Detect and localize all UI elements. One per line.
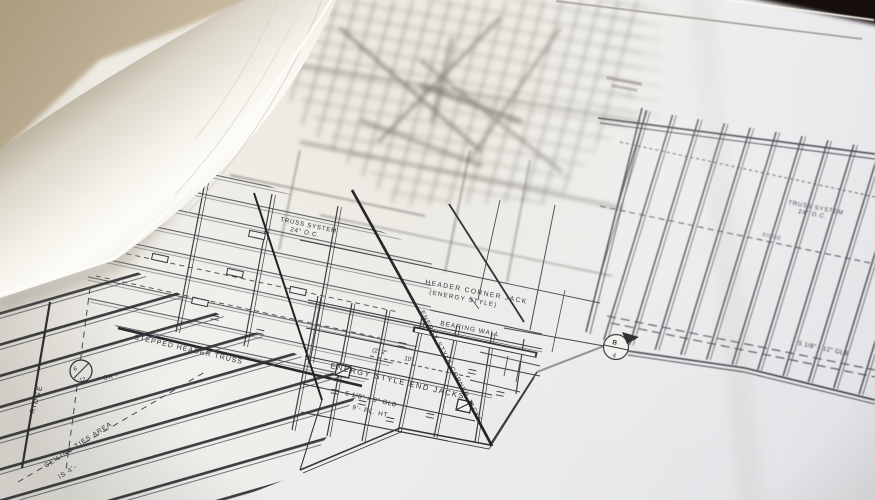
framing-plan-svg: TRUSS SYSTEM 24" O.C. RIDGE 5 1/8" - 12"… [0,0,875,500]
blueprint-photo: TRUSS SYSTEM 24" O.C. RIDGE 5 1/8" - 12"… [0,0,875,500]
